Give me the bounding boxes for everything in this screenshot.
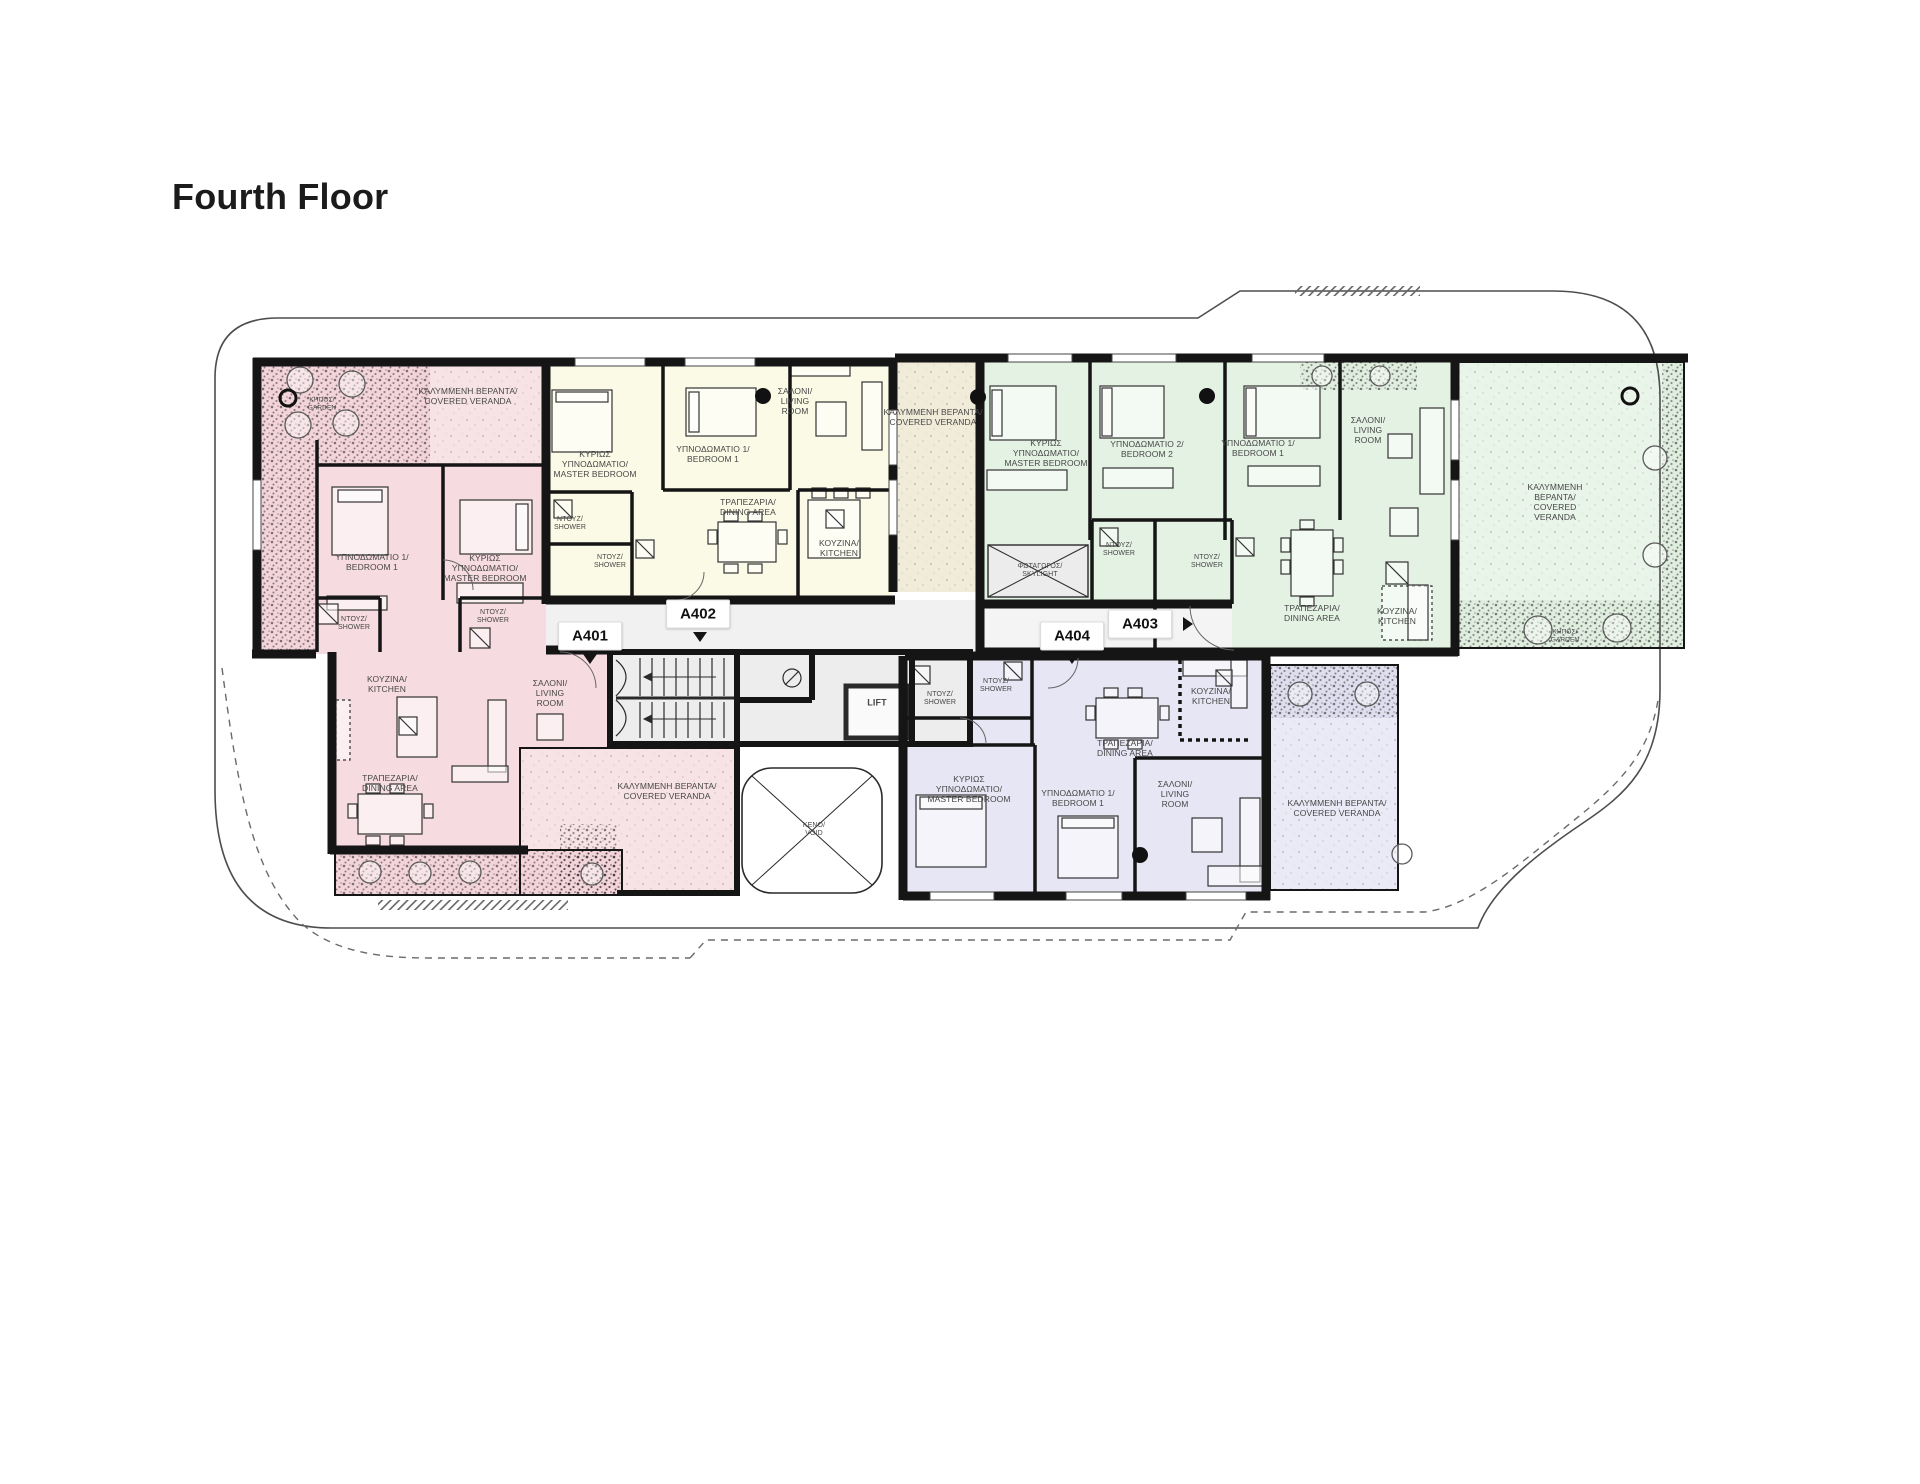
a401-covered-veranda-top: ΚΑΛΥΜΜΕΝΗ ΒΕΡΑΝΤΑ/ COVERED VERANDA (418, 386, 517, 406)
a403-bedroom-1: ΥΠΝΟΔΩΜΑΤΙΟ 1/ BEDROOM 1 (1221, 438, 1295, 458)
a401-shower-1: ΝΤΟΥΖ/ SHOWER (338, 616, 370, 633)
a403-shower-2: ΝΤΟΥΖ/ SHOWER (1191, 554, 1223, 571)
a402-master-bedroom: ΚΥΡΙΩΣ ΥΠΝΟΔΩΜΑΤΙΟ/ MASTER BEDROOM (553, 449, 636, 479)
unit-entrance-arrow-a404 (1065, 654, 1079, 664)
a402-dining-area: ΤΡΑΠΕΖΑΡΙΑ/ DINING AREA (720, 497, 776, 517)
a403-living-room: ΣΑΛΟΝΙ/ LIVING ROOM (1351, 415, 1386, 445)
a403-garden: ΚΗΠΟΣ/ GARDEN (1551, 628, 1579, 643)
unit-badge-a404: A404 (1040, 622, 1104, 651)
a401-dining-area: ΤΡΑΠΕΖΑΡΙΑ/ DINING AREA (362, 773, 418, 793)
a401-bedroom-1: ΥΠΝΟΔΩΜΑΤΙΟ 1/ BEDROOM 1 (335, 552, 409, 572)
a403-kitchen: ΚΟΥΖΙΝΑ/ KITCHEN (1377, 606, 1417, 626)
a404-shower-1: ΝΤΟΥΖ/ SHOWER (924, 691, 956, 708)
a403-covered-veranda: ΚΑΛΥΜΜΕΝΗ ΒΕΡΑΝΤΑ/ COVERED VERANDA (1527, 482, 1582, 522)
unit-entrance-arrow-a402 (693, 632, 707, 642)
unit-badge-a401: A401 (558, 622, 622, 651)
unit-entrance-arrow-a401 (583, 654, 597, 664)
lift: LIFT (867, 698, 886, 709)
a401-covered-veranda: ΚΑΛΥΜΜΕΝΗ ΒΕΡΑΝΤΑ/ COVERED VERANDA (617, 781, 716, 801)
a402-bedroom-1: ΥΠΝΟΔΩΜΑΤΙΟ 1/ BEDROOM 1 (676, 444, 750, 464)
void: ΚΕΝΟ/ VOID (803, 822, 825, 839)
a404-kitchen: ΚΟΥΖΙΝΑ/ KITCHEN (1191, 686, 1231, 706)
unit-badge-a403: A403 (1108, 610, 1172, 639)
a404-living-room: ΣΑΛΟΝΙ/ LIVING ROOM (1158, 779, 1193, 809)
a403-master-bedroom: ΚΥΡΙΩΣ ΥΠΝΟΔΩΜΑΤΙΟ/ MASTER BEDROOM (1004, 438, 1087, 468)
a404-covered-veranda: ΚΑΛΥΜΜΕΝΗ ΒΕΡΑΝΤΑ/ COVERED VERANDA (1287, 798, 1386, 818)
a404-dining-area: ΤΡΑΠΕΖΑΡΙΑ/ DINING AREA (1097, 738, 1153, 758)
floor-plan-page: Fourth Floor (0, 0, 1920, 1484)
a401-shower-2: ΝΤΟΥΖ/ SHOWER (477, 609, 509, 626)
a404-bedroom-1: ΥΠΝΟΔΩΜΑΤΙΟ 1/ BEDROOM 1 (1041, 788, 1115, 808)
a403-skylight: ΦΩΤΑΓΩΓΟΣ/ SKYLIGHT (1018, 563, 1063, 580)
unit-badge-a402: A402 (666, 600, 730, 629)
a402-kitchen: ΚΟΥΖΙΝΑ/ KITCHEN (819, 538, 859, 558)
a402-shower-1: ΝΤΟΥΖ/ SHOWER (554, 516, 586, 533)
unit-entrance-arrow-a403 (1183, 617, 1193, 631)
a404-shower-2: ΝΤΟΥΖ/ SHOWER (980, 678, 1012, 695)
labels-layer: ΚΑΛΥΜΜΕΝΗ ΒΕΡΑΝΤΑ/ COVERED VERANDAΚΗΠΟΣ/… (0, 0, 1920, 1484)
mid-covered-veranda: ΚΑΛΥΜΜΕΝΗ ΒΕΡΑΝΤΑ/ COVERED VERANDA (883, 407, 982, 427)
a403-bedroom-2: ΥΠΝΟΔΩΜΑΤΙΟ 2/ BEDROOM 2 (1110, 439, 1184, 459)
a404-master-bedroom: ΚΥΡΙΩΣ ΥΠΝΟΔΩΜΑΤΙΟ/ MASTER BEDROOM (927, 774, 1010, 804)
a401-master-bedroom: ΚΥΡΙΩΣ ΥΠΝΟΔΩΜΑΤΙΟ/ MASTER BEDROOM (443, 553, 526, 583)
a402-living-room: ΣΑΛΟΝΙ/ LIVING ROOM (778, 386, 813, 416)
a403-dining-area: ΤΡΑΠΕΖΑΡΙΑ/ DINING AREA (1284, 603, 1340, 623)
a401-kitchen: ΚΟΥΖΙΝΑ/ KITCHEN (367, 674, 407, 694)
a401-living-room: ΣΑΛΟΝΙ/ LIVING ROOM (533, 678, 568, 708)
a403-shower-1: ΝΤΟΥΖ/ SHOWER (1103, 542, 1135, 559)
a401-garden: ΚΗΠΟΣ/ GARDEN (308, 396, 336, 411)
a402-shower-2: ΝΤΟΥΖ/ SHOWER (594, 554, 626, 571)
